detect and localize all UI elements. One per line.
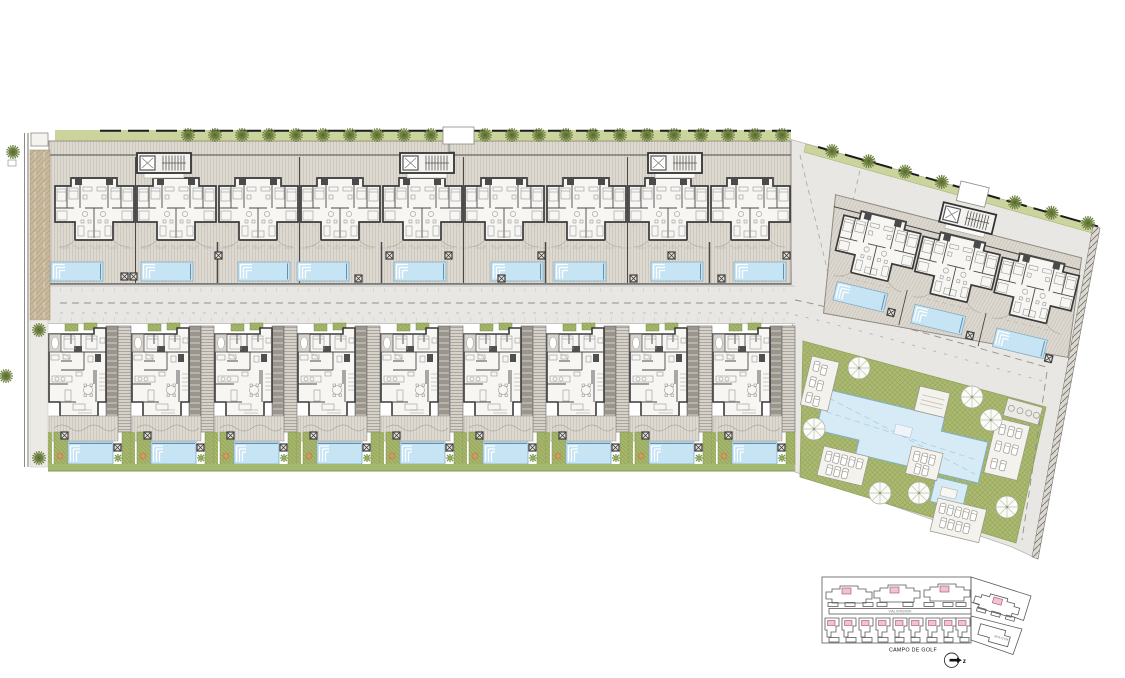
svg-text:CAMPO DE GOLF: CAMPO DE GOLF: [889, 648, 938, 654]
svg-text:VIAL INTERIOR: VIAL INTERIOR: [889, 610, 913, 614]
